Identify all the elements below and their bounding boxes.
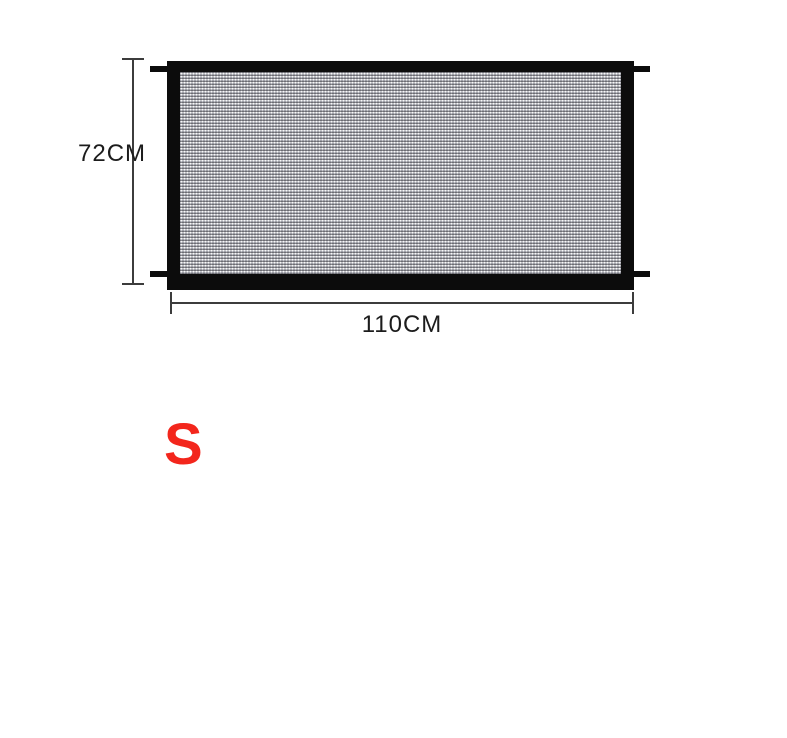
width-dimension-cap-left <box>170 292 172 314</box>
width-dimension-line <box>170 302 634 304</box>
mounting-tab-top-right <box>632 66 650 72</box>
height-dimension-label: 72CM <box>78 142 146 166</box>
gate-mesh-panel <box>180 72 621 274</box>
size-badge: S <box>164 416 203 474</box>
mounting-tab-bottom-left <box>150 271 168 277</box>
mesh-gate-image <box>167 61 634 290</box>
mounting-tab-bottom-right <box>632 271 650 277</box>
product-dimension-diagram: 72CM 110CM S <box>0 0 787 738</box>
width-dimension-cap-right <box>632 292 634 314</box>
height-dimension-cap-top <box>122 58 144 60</box>
height-dimension-line <box>132 59 134 285</box>
width-dimension-label: 110CM <box>362 313 443 337</box>
mounting-tab-top-left <box>150 66 168 72</box>
height-dimension-cap-bottom <box>122 283 144 285</box>
